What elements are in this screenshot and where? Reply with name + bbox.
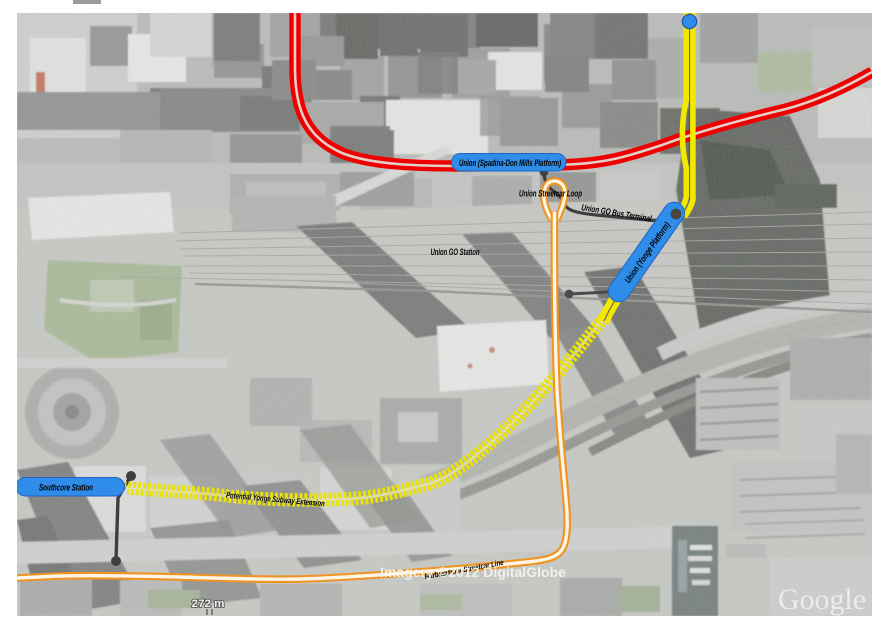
svg-text:Union (Spadina-Don Mills Platf: Union (Spadina-Don Mills Platform) xyxy=(459,158,561,168)
svg-text:272 m: 272 m xyxy=(192,598,225,610)
svg-text:Imagery ©2012 DigitalGlobe: Imagery ©2012 DigitalGlobe xyxy=(380,564,566,580)
svg-text:Union Streetcar Loop: Union Streetcar Loop xyxy=(519,189,582,199)
svg-text:Union GO Station: Union GO Station xyxy=(431,247,480,257)
svg-text:Google: Google xyxy=(778,583,866,616)
svg-text:Southcore Station: Southcore Station xyxy=(39,483,93,494)
